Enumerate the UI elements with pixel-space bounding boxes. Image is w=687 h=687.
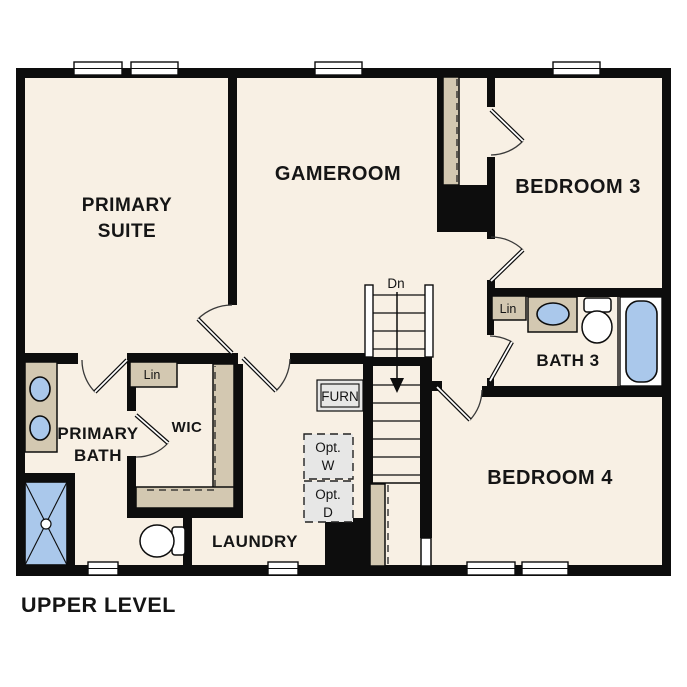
shower-icon bbox=[25, 482, 67, 565]
bedroom4-label: BEDROOM 4 bbox=[487, 467, 613, 489]
opt-dryer-label-line1: Opt. bbox=[315, 487, 341, 502]
opt-dryer-label-line2: D bbox=[323, 505, 333, 520]
wall-segment bbox=[420, 357, 432, 538]
bath3-label: BATH 3 bbox=[536, 351, 599, 370]
sink-icon bbox=[537, 303, 569, 325]
linen-bath3-label: Lin bbox=[500, 302, 517, 316]
wall-segment bbox=[127, 456, 136, 510]
window bbox=[553, 62, 600, 75]
wall-segment bbox=[290, 353, 368, 364]
primary-bath-label-line1: PRIMARY bbox=[57, 424, 138, 443]
sink-icon bbox=[30, 416, 50, 440]
attic-chase bbox=[443, 77, 459, 185]
primary-suite-label-line2: SUITE bbox=[98, 221, 156, 242]
wall-segment bbox=[16, 68, 25, 576]
wall-segment bbox=[437, 77, 443, 185]
wall-segment bbox=[482, 386, 671, 397]
window bbox=[88, 562, 118, 575]
wall-segment bbox=[228, 68, 237, 305]
window bbox=[74, 62, 122, 75]
wall-segment bbox=[487, 68, 495, 107]
understair-storage bbox=[370, 484, 385, 566]
stair-direction-label: Dn bbox=[387, 276, 404, 291]
wall-segment bbox=[127, 508, 243, 518]
gameroom-label: GAMEROOM bbox=[275, 163, 401, 185]
page-title: UPPER LEVEL bbox=[21, 593, 176, 617]
structural-block bbox=[437, 185, 495, 232]
window bbox=[522, 562, 568, 575]
toilet-icon bbox=[582, 298, 612, 343]
wall-segment bbox=[487, 157, 495, 185]
understair-door bbox=[421, 538, 431, 566]
window bbox=[268, 562, 298, 575]
wall-segment bbox=[487, 232, 495, 239]
laundry-label: LAUNDRY bbox=[212, 532, 298, 551]
furnace-label: FURN bbox=[321, 389, 359, 404]
wall-segment bbox=[662, 68, 671, 576]
structural-block bbox=[325, 518, 370, 568]
floor-plan-svg: PRIMARY SUITE GAMEROOM BEDROOM 3 BATH 3 … bbox=[0, 0, 687, 687]
stair-rail bbox=[365, 285, 373, 357]
wic-label: WIC bbox=[172, 419, 203, 436]
window bbox=[131, 62, 178, 75]
sink-icon bbox=[30, 377, 50, 401]
floor-plan-page: PRIMARY SUITE GAMEROOM BEDROOM 3 BATH 3 … bbox=[0, 0, 687, 687]
bedroom3-label: BEDROOM 3 bbox=[515, 176, 641, 198]
window bbox=[467, 562, 515, 575]
primary-suite-label-line1: PRIMARY bbox=[82, 195, 172, 216]
toilet-icon bbox=[140, 525, 185, 557]
bathtub-icon bbox=[620, 297, 662, 386]
primary-bath-label-line2: BATH bbox=[74, 446, 122, 465]
opt-washer-label-line1: Opt. bbox=[315, 440, 341, 455]
wall-segment bbox=[234, 364, 243, 508]
opt-washer-label-line2: W bbox=[322, 458, 335, 473]
stair-rail bbox=[425, 285, 433, 357]
linen-wic-label: Lin bbox=[144, 368, 161, 382]
window bbox=[315, 62, 362, 75]
